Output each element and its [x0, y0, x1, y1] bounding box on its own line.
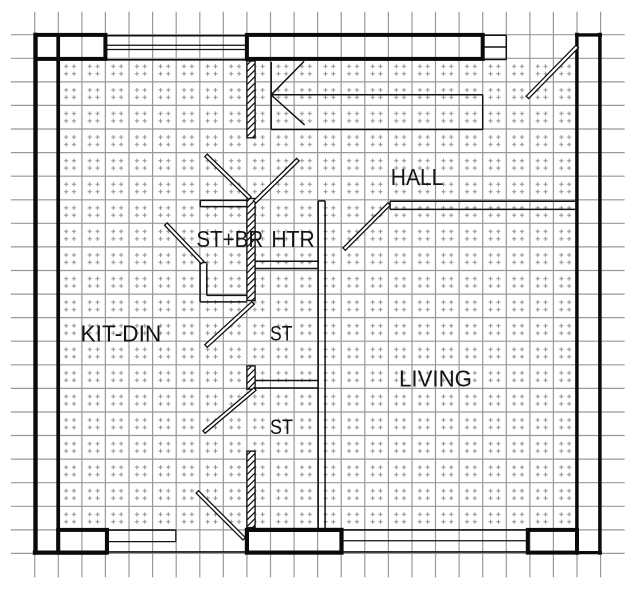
svg-text:HALL: HALL: [391, 164, 444, 190]
svg-text:HTR: HTR: [271, 226, 314, 252]
svg-text:LIVING: LIVING: [399, 366, 472, 392]
svg-text:ST: ST: [270, 416, 293, 439]
svg-text:ST+BR: ST+BR: [196, 226, 263, 252]
svg-text:KIT-DIN: KIT-DIN: [81, 321, 162, 347]
svg-text:ST: ST: [270, 322, 293, 345]
